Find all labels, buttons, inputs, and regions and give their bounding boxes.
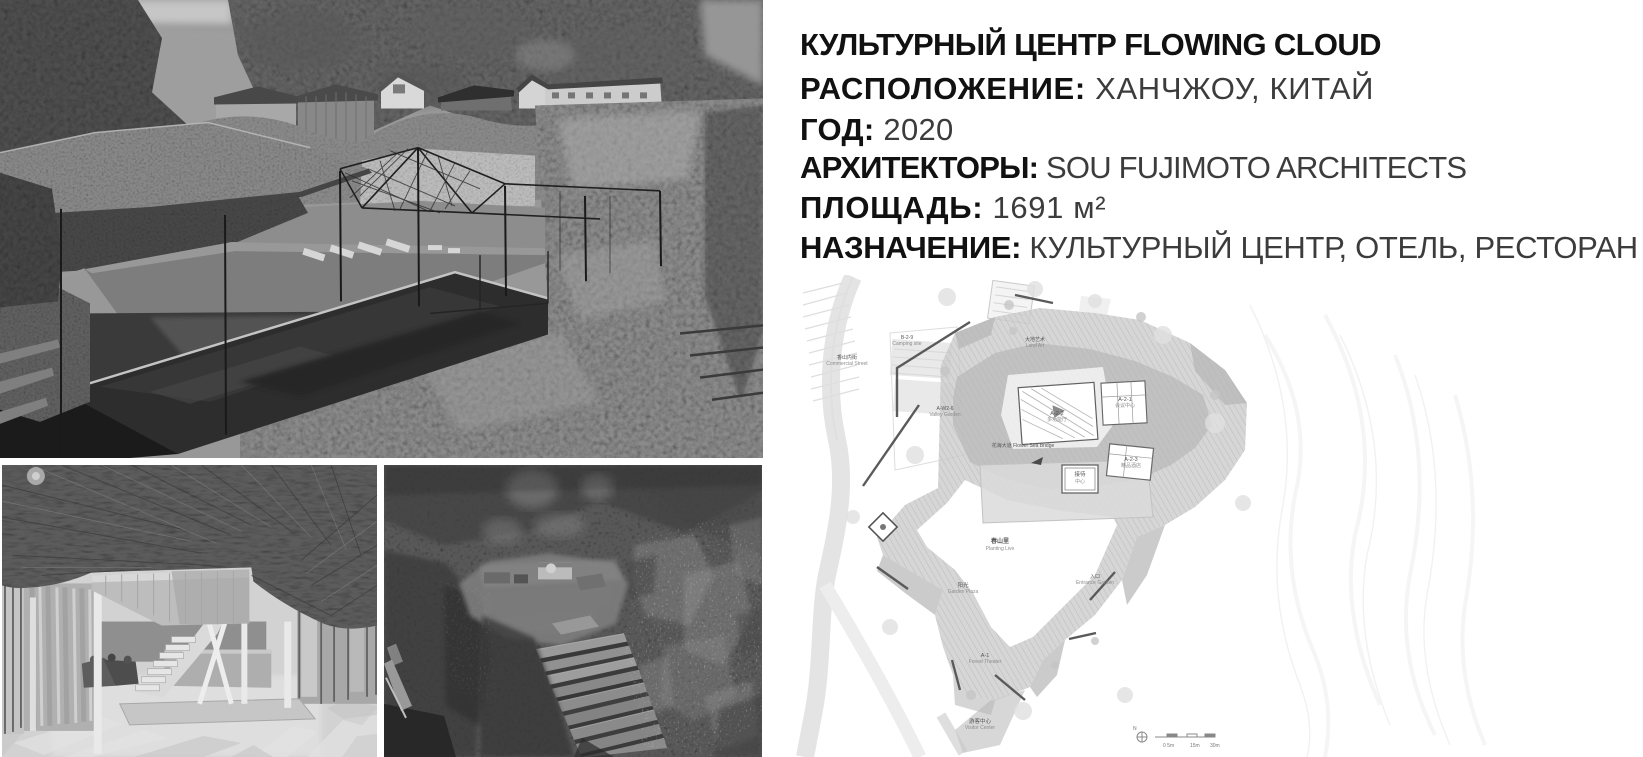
svg-text:30m: 30m xyxy=(1210,743,1220,749)
svg-text:Camping site: Camping site xyxy=(892,341,921,347)
svg-text:Visitor Center: Visitor Center xyxy=(965,725,996,731)
svg-text:15m: 15m xyxy=(1190,743,1200,749)
svg-text:Entrance Garden: Entrance Garden xyxy=(1076,580,1114,586)
svg-text:大地艺术: 大地艺术 xyxy=(1025,336,1045,343)
svg-text:Forest Theater: Forest Theater xyxy=(969,659,1002,665)
svg-text:中心: 中心 xyxy=(1075,478,1085,485)
svg-text:接待: 接待 xyxy=(1074,470,1086,478)
svg-text:Garden Plaza: Garden Plaza xyxy=(948,589,979,595)
svg-text:花海大道 Flower Sea Bridge: 花海大道 Flower Sea Bridge xyxy=(992,442,1055,449)
svg-text:香山内街: 香山内街 xyxy=(837,354,857,361)
svg-text:阳光: 阳光 xyxy=(957,581,969,589)
svg-text:N: N xyxy=(1133,726,1137,732)
svg-text:春山里: 春山里 xyxy=(990,537,1009,545)
svg-text:精品酒店: 精品酒店 xyxy=(1121,462,1141,469)
svg-text:游客中心: 游客中心 xyxy=(969,717,992,725)
svg-text:多功能厅: 多功能厅 xyxy=(1047,416,1067,423)
svg-text:0 5m: 0 5m xyxy=(1163,743,1174,749)
svg-text:Valley Garden: Valley Garden xyxy=(929,412,961,418)
svg-text:Planting Live: Planting Live xyxy=(986,546,1015,552)
svg-text:Commercial Street: Commercial Street xyxy=(826,361,868,367)
svg-text:会议中心: 会议中心 xyxy=(1115,402,1135,409)
svg-text:Land Art: Land Art xyxy=(1026,343,1045,349)
